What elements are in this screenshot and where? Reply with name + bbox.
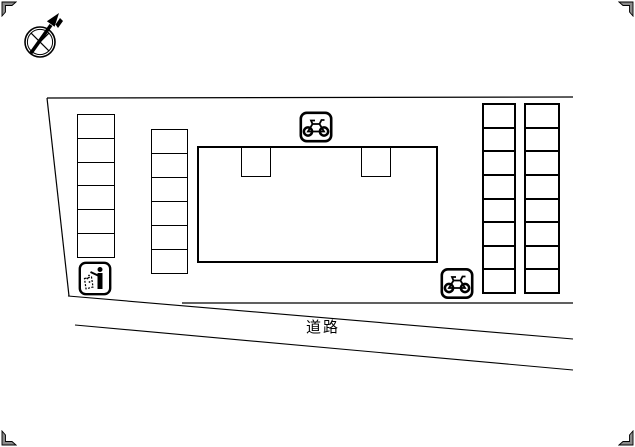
parking-column-right-outer <box>524 103 560 294</box>
parking-space <box>484 152 514 176</box>
parking-space <box>152 250 187 273</box>
parking-space <box>152 178 187 202</box>
parking-column-middle <box>151 129 188 274</box>
parking-space <box>484 200 514 224</box>
parking-space <box>78 115 114 139</box>
parking-column-right-inner <box>482 103 516 294</box>
building-entrance-notch <box>361 148 391 177</box>
parking-column-left <box>77 114 115 258</box>
parking-space <box>152 130 187 154</box>
parking-space <box>152 202 187 226</box>
parking-space <box>526 105 558 129</box>
parking-space <box>526 152 558 176</box>
parking-space <box>526 176 558 200</box>
road-label: 道路 <box>306 316 350 334</box>
parking-space <box>78 139 114 163</box>
site-plan-canvas: 道路 <box>0 0 635 447</box>
parking-space <box>484 223 514 247</box>
garbage-disposal-icon <box>78 261 112 301</box>
parking-space <box>78 186 114 210</box>
parking-space <box>484 176 514 200</box>
building-entrance-notch <box>241 148 271 177</box>
parking-space <box>78 234 114 257</box>
parking-space <box>152 226 187 250</box>
parking-space <box>526 270 558 292</box>
bicycle-parking-icon <box>299 111 333 148</box>
parking-space <box>484 270 514 292</box>
parking-space <box>484 129 514 153</box>
parking-space <box>526 223 558 247</box>
building-outline <box>197 146 438 263</box>
parking-space <box>484 247 514 271</box>
parking-space <box>526 247 558 271</box>
parking-space <box>152 154 187 178</box>
parking-space <box>484 105 514 129</box>
parking-space <box>526 200 558 224</box>
parking-space <box>526 129 558 153</box>
parking-space <box>78 210 114 234</box>
bicycle-parking-icon <box>440 267 474 305</box>
parking-space <box>78 163 114 187</box>
